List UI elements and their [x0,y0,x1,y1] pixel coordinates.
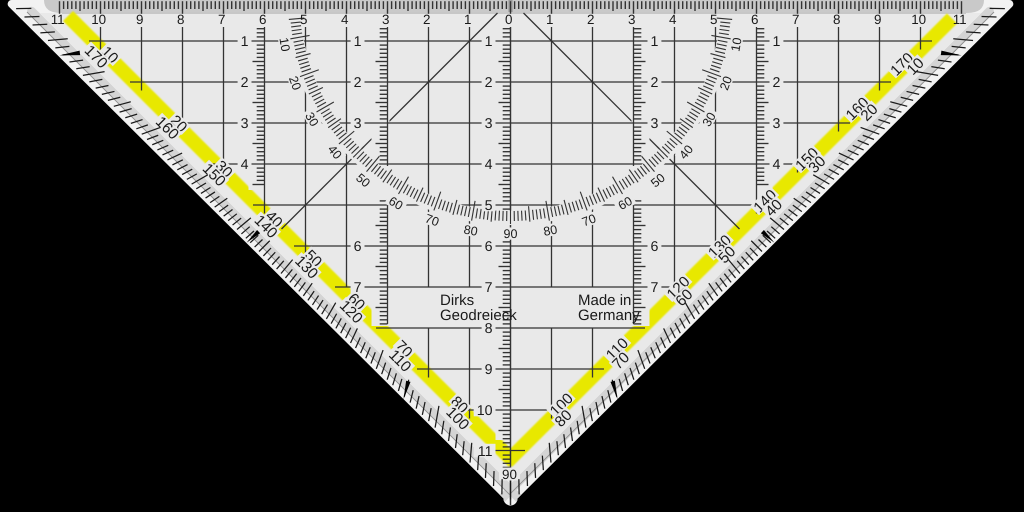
svg-text:Germany: Germany [578,307,640,324]
svg-text:1: 1 [773,34,781,50]
svg-text:0: 0 [505,12,512,27]
svg-text:4: 4 [241,157,249,173]
svg-text:7: 7 [485,280,493,296]
svg-text:80: 80 [542,223,558,239]
svg-text:8: 8 [177,12,184,27]
svg-text:11: 11 [953,12,967,27]
svg-text:1: 1 [354,34,362,50]
svg-text:3: 3 [485,116,493,132]
svg-text:10: 10 [477,403,493,419]
svg-text:10: 10 [91,12,106,27]
svg-text:11: 11 [51,12,65,27]
svg-text:1: 1 [485,34,493,50]
svg-text:11: 11 [478,444,493,460]
svg-text:Geodreieck: Geodreieck [440,307,517,324]
svg-text:7: 7 [792,12,799,27]
svg-text:4: 4 [773,157,781,173]
svg-text:8: 8 [833,12,840,27]
svg-text:1: 1 [464,12,471,27]
svg-text:5: 5 [485,198,493,214]
svg-text:80: 80 [463,223,479,239]
svg-text:90: 90 [502,467,517,482]
svg-text:7: 7 [218,12,225,27]
svg-text:2: 2 [423,12,430,27]
svg-text:4: 4 [485,157,493,173]
svg-text:2: 2 [354,75,362,91]
svg-text:2: 2 [587,12,594,27]
svg-text:3: 3 [382,12,389,27]
svg-text:2: 2 [773,75,781,91]
svg-text:10: 10 [728,36,744,52]
svg-text:5: 5 [300,12,307,27]
svg-text:2: 2 [241,75,249,91]
svg-text:7: 7 [651,280,659,296]
svg-text:90: 90 [504,227,518,241]
svg-text:9: 9 [136,12,143,27]
svg-text:6: 6 [354,239,362,255]
svg-text:6: 6 [751,12,758,27]
svg-text:5: 5 [710,12,717,27]
svg-text:1: 1 [546,12,553,27]
svg-text:4: 4 [341,12,349,27]
svg-text:6: 6 [259,12,266,27]
svg-text:6: 6 [651,239,659,255]
svg-text:9: 9 [874,12,881,27]
svg-text:1: 1 [651,34,659,50]
svg-text:10: 10 [276,36,292,52]
svg-text:6: 6 [485,239,493,255]
svg-text:2: 2 [485,75,493,91]
svg-text:4: 4 [669,12,677,27]
svg-text:10: 10 [911,12,926,27]
svg-text:3: 3 [354,116,362,132]
svg-text:9: 9 [485,362,493,378]
svg-text:2: 2 [651,75,659,91]
svg-text:3: 3 [773,116,781,132]
svg-text:3: 3 [651,116,659,132]
svg-text:1: 1 [241,34,249,50]
svg-text:3: 3 [241,116,249,132]
svg-text:3: 3 [628,12,635,27]
svg-text:7: 7 [354,280,362,296]
